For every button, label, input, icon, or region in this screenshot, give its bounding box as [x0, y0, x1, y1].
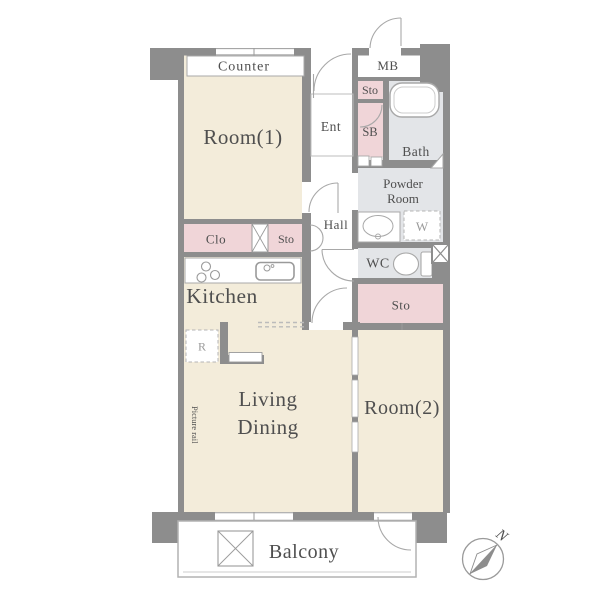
kitchen-sink-basin [256, 263, 294, 281]
wc-label: WC [366, 257, 390, 272]
wall-inset-2 [371, 157, 382, 166]
mb-door-arc [370, 18, 401, 48]
vanity-counter [358, 212, 400, 242]
mb-label: MB [377, 58, 398, 73]
wc-doorway-gap [352, 249, 358, 278]
counter-label: Counter [218, 60, 270, 75]
wall-powder-wc [352, 242, 443, 248]
pipe-shaft-icon [432, 244, 449, 278]
toilet-icon [394, 252, 433, 276]
picture-rail-label: Picture rail [190, 406, 200, 444]
sliding-panel-2 [352, 380, 358, 417]
washer-label: W [416, 219, 429, 234]
room1-label: Room(1) [203, 125, 282, 149]
room2-balcony-door-gap [374, 512, 412, 521]
bathtub-icon [390, 83, 439, 117]
window-room1 [216, 48, 294, 56]
fridge-label: R [198, 340, 206, 354]
ent-label: Ent [321, 119, 341, 134]
wall-closet-top [184, 219, 302, 224]
living-line2: Dining [237, 415, 298, 439]
powder-doorway-gap [352, 173, 358, 210]
window-ld [215, 512, 293, 521]
room2-balcony-gap [374, 512, 412, 521]
pillar-bottom-right [415, 512, 447, 543]
wall-sb-top [352, 99, 385, 103]
pipe-shaft-block [432, 263, 449, 278]
compass: N [463, 526, 512, 580]
storage-right-label: Sto [392, 298, 411, 313]
kitchen-label: Kitchen [186, 284, 258, 308]
sliding-panel-1 [352, 337, 358, 375]
shoe-box-label: SB [362, 125, 377, 139]
closet-label: Clo [206, 232, 226, 247]
sliding-panel-3 [352, 422, 358, 452]
powder-line1: Powder [383, 176, 423, 191]
toilet-tank [421, 252, 432, 276]
floor-plan-canvas: Counter Room(1) MB Sto Ent SB Bath Powde… [0, 0, 600, 600]
bathtub-outer [390, 83, 439, 117]
wall-wc-storage [352, 278, 443, 284]
compass-needle-north-icon [470, 545, 497, 574]
balcony-label: Balcony [269, 541, 339, 563]
powder-room-label: PowderRoom [383, 176, 423, 206]
kitchen-sink-icon [256, 263, 294, 281]
room2-label: Room(2) [364, 397, 440, 419]
wall-storage-room2 [352, 323, 443, 330]
wall-right [443, 48, 450, 513]
ps-box-icon [252, 224, 268, 252]
bath-label: Bath [402, 144, 430, 159]
wall-closet-bottom [184, 252, 302, 257]
sliding-partition [352, 337, 358, 452]
hall-label: Hall [324, 217, 348, 232]
room2-floor [358, 330, 443, 512]
storage-mid-label: Sto [278, 232, 294, 246]
vanity-sink-icon [358, 212, 400, 242]
floor-plan: Counter Room(1) MB Sto Ent SB Bath Powde… [0, 0, 600, 600]
toilet-bowl [394, 253, 419, 275]
wall-bath-west [383, 78, 389, 162]
living-line1: Living [239, 387, 298, 411]
mb-doorway-gap [369, 48, 401, 56]
powder-line2: Room [387, 191, 419, 206]
wall-left [178, 48, 184, 513]
wall-kitchen-vertical [220, 322, 228, 364]
balcony-hatch-icon [218, 531, 253, 566]
ld-doorway-gap [309, 322, 343, 330]
wall-inset-1 [358, 156, 369, 166]
window-room1-gap [216, 48, 294, 56]
kitchen-pass-inset [229, 353, 262, 363]
storage-top-label: Sto [362, 83, 378, 97]
